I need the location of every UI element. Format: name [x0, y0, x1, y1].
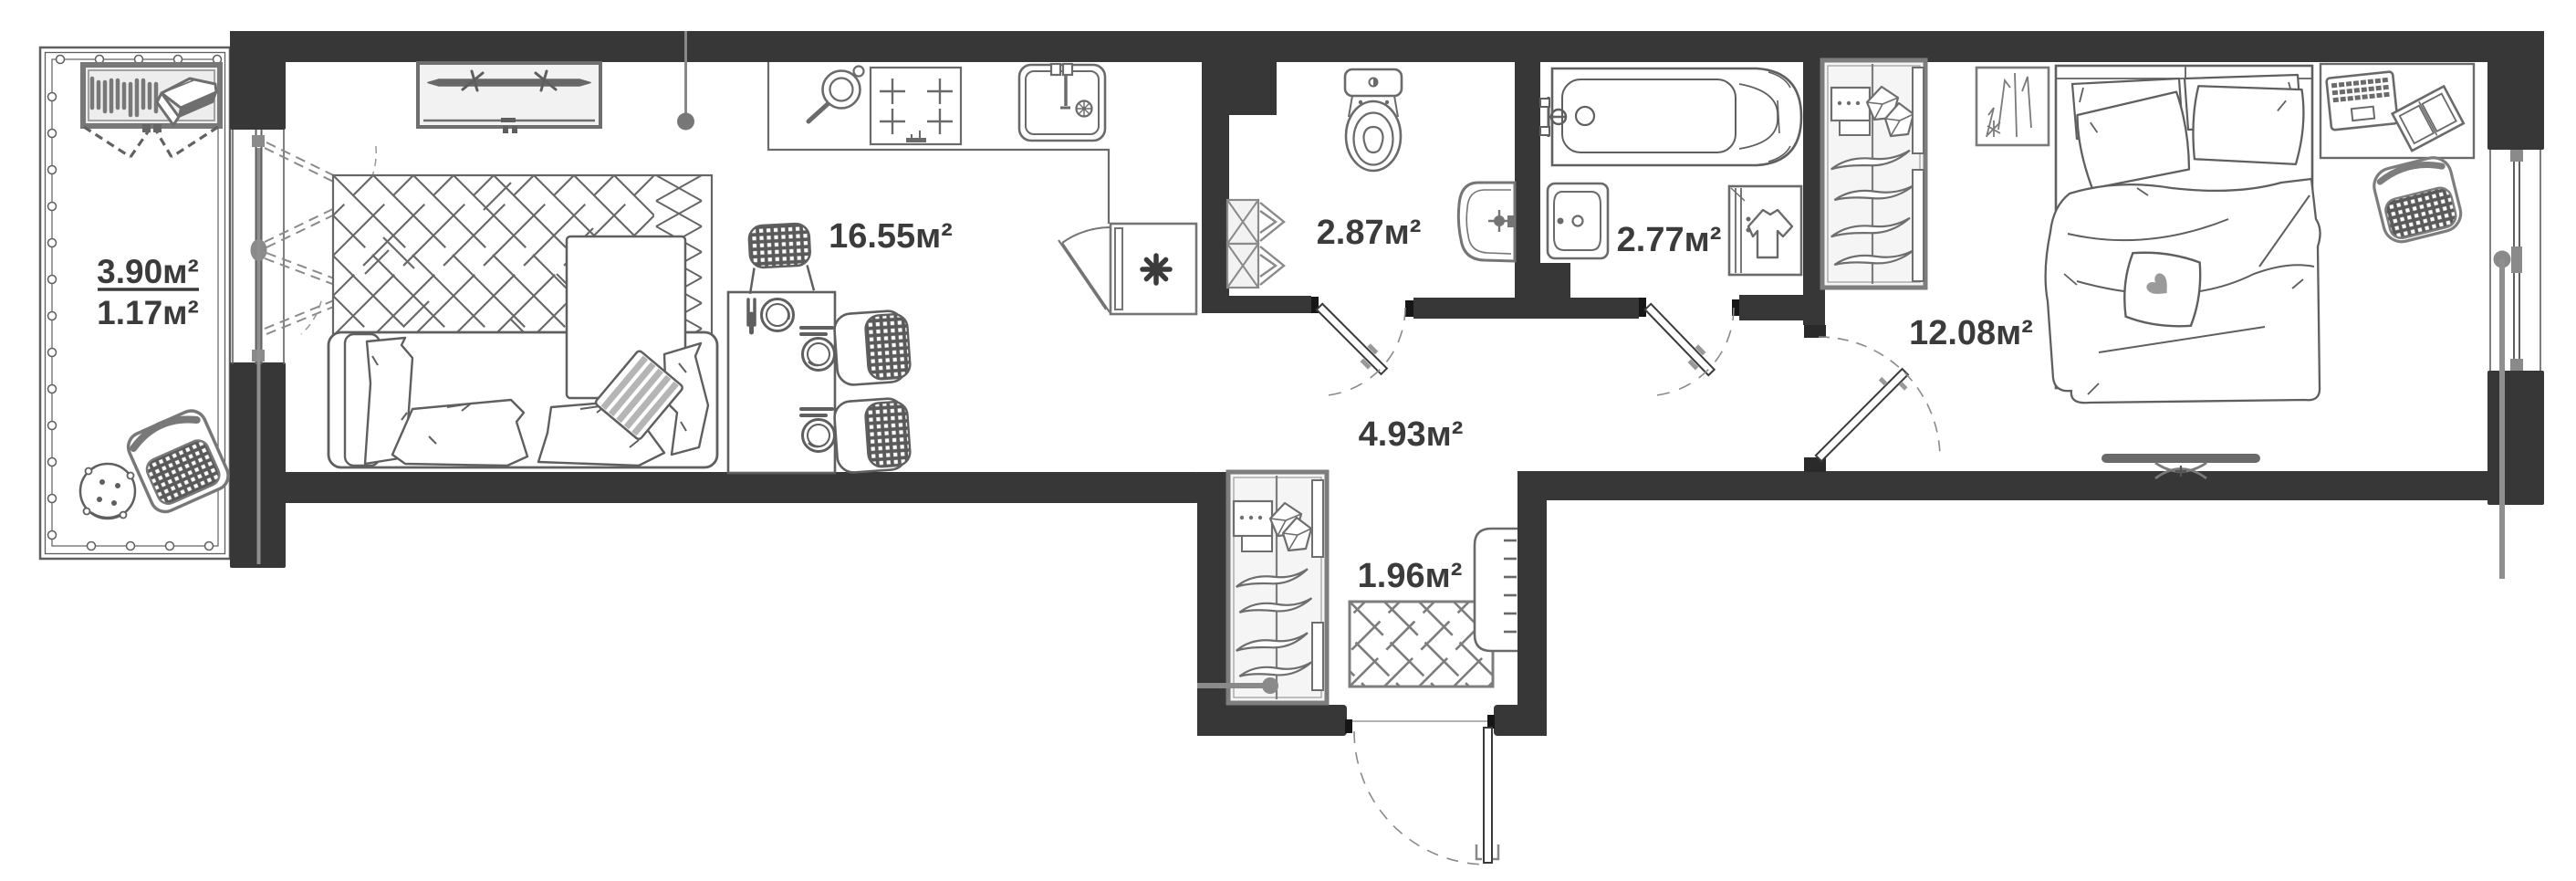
- svg-text:12.08м²: 12.08м²: [1909, 314, 2033, 352]
- svg-text:16.55м²: 16.55м²: [829, 217, 953, 256]
- svg-text:3.90м²: 3.90м²: [97, 253, 199, 290]
- svg-text:2.77м²: 2.77м²: [1617, 221, 1722, 259]
- svg-text:2.87м²: 2.87м²: [1317, 214, 1422, 252]
- svg-text:1.96м²: 1.96м²: [1358, 557, 1463, 595]
- svg-text:4.93м²: 4.93м²: [1359, 415, 1464, 454]
- svg-text:1.17м²: 1.17м²: [97, 294, 199, 331]
